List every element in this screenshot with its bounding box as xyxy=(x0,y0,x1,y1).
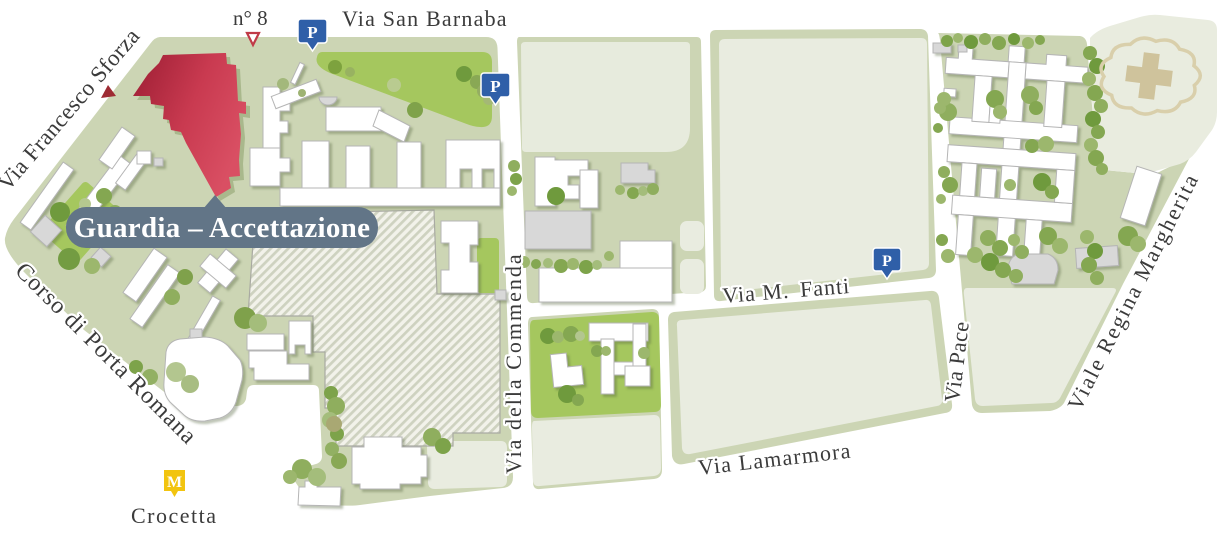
svg-text:P: P xyxy=(882,253,892,270)
svg-text:Guardia – Accettazione: Guardia – Accettazione xyxy=(74,212,371,244)
svg-text:n° 8: n° 8 xyxy=(233,6,268,30)
svg-text:M: M xyxy=(167,474,182,491)
svg-text:Via della Commenda: Via della Commenda xyxy=(501,252,526,474)
svg-text:P: P xyxy=(490,77,500,96)
svg-text:Crocetta: Crocetta xyxy=(131,503,218,528)
svg-text:Via Pace: Via Pace xyxy=(939,320,974,404)
svg-text:P: P xyxy=(307,23,317,42)
svg-text:Via San Barnaba: Via San Barnaba xyxy=(342,6,508,31)
